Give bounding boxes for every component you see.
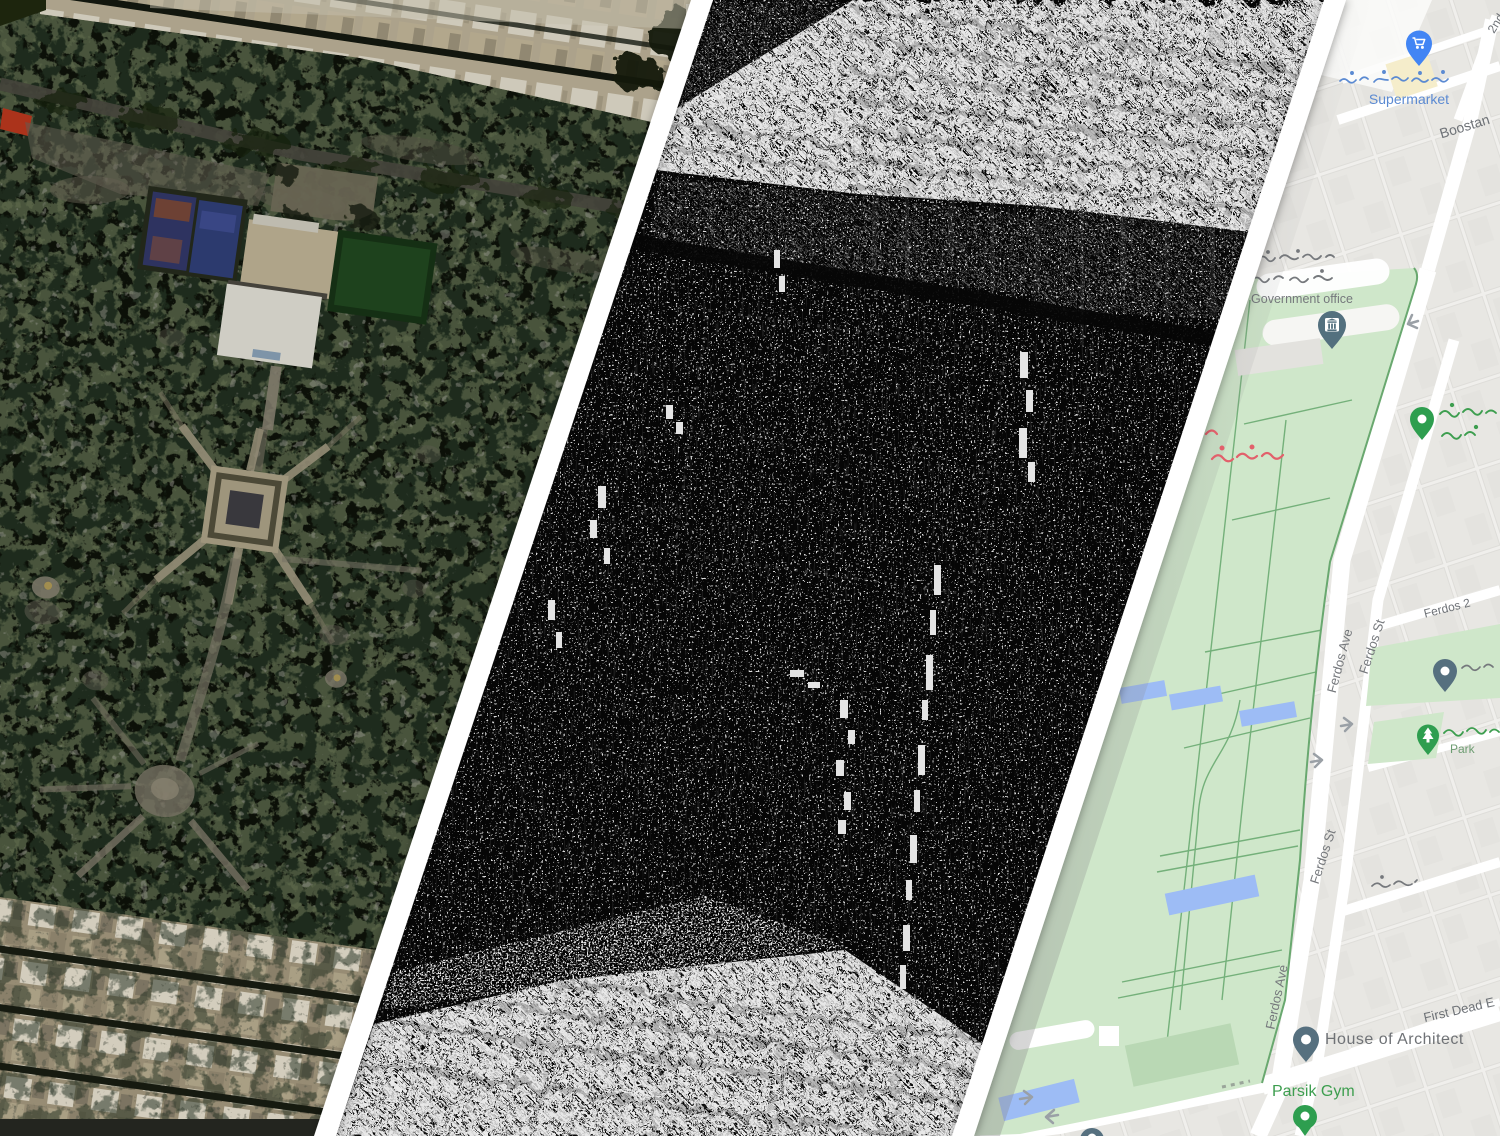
svg-text:Supermarket: Supermarket <box>1369 91 1449 107</box>
svg-text:Government office: Government office <box>1251 292 1353 306</box>
svg-text:Parsik Gym: Parsik Gym <box>1272 1083 1355 1100</box>
svg-text:Park: Park <box>1450 742 1476 756</box>
svg-text:House of Architect: House of Architect <box>1325 1031 1464 1048</box>
